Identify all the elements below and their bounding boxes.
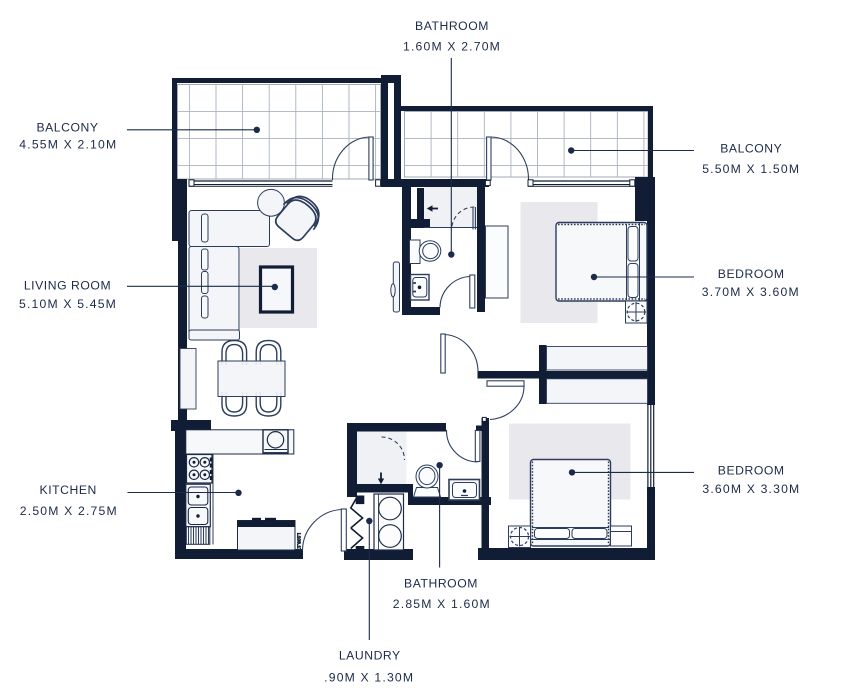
svg-text:BATHROOM: BATHROOM [415,19,489,33]
svg-text:.90M X 1.30M: .90M X 1.30M [324,670,414,684]
svg-text:BALCONY: BALCONY [720,141,782,155]
svg-text:2.85M X 1.60M: 2.85M X 1.60M [393,597,491,611]
svg-text:BEDROOM: BEDROOM [718,463,785,477]
svg-text:1.60M X 2.70M: 1.60M X 2.70M [403,40,501,54]
svg-text:4.55M X 2.10M: 4.55M X 2.10M [19,138,117,152]
svg-text:KITCHEN: KITCHEN [40,483,97,497]
svg-text:BEDROOM: BEDROOM [718,267,785,281]
svg-text:2.50M X 2.75M: 2.50M X 2.75M [20,504,118,518]
svg-text:L103.17: L103.17 [297,533,302,551]
svg-text:LAUNDRY: LAUNDRY [339,649,401,663]
svg-text:BALCONY: BALCONY [36,121,98,135]
svg-text:5.10M X 5.45M: 5.10M X 5.45M [19,297,117,311]
svg-text:LIVING ROOM: LIVING ROOM [24,278,111,292]
svg-text:3.70M X 3.60M: 3.70M X 3.60M [702,285,800,299]
svg-text:BATHROOM: BATHROOM [404,577,478,591]
svg-text:5.50M X 1.50M: 5.50M X 1.50M [702,162,800,176]
svg-text:3.60M X 3.30M: 3.60M X 3.30M [702,482,800,496]
